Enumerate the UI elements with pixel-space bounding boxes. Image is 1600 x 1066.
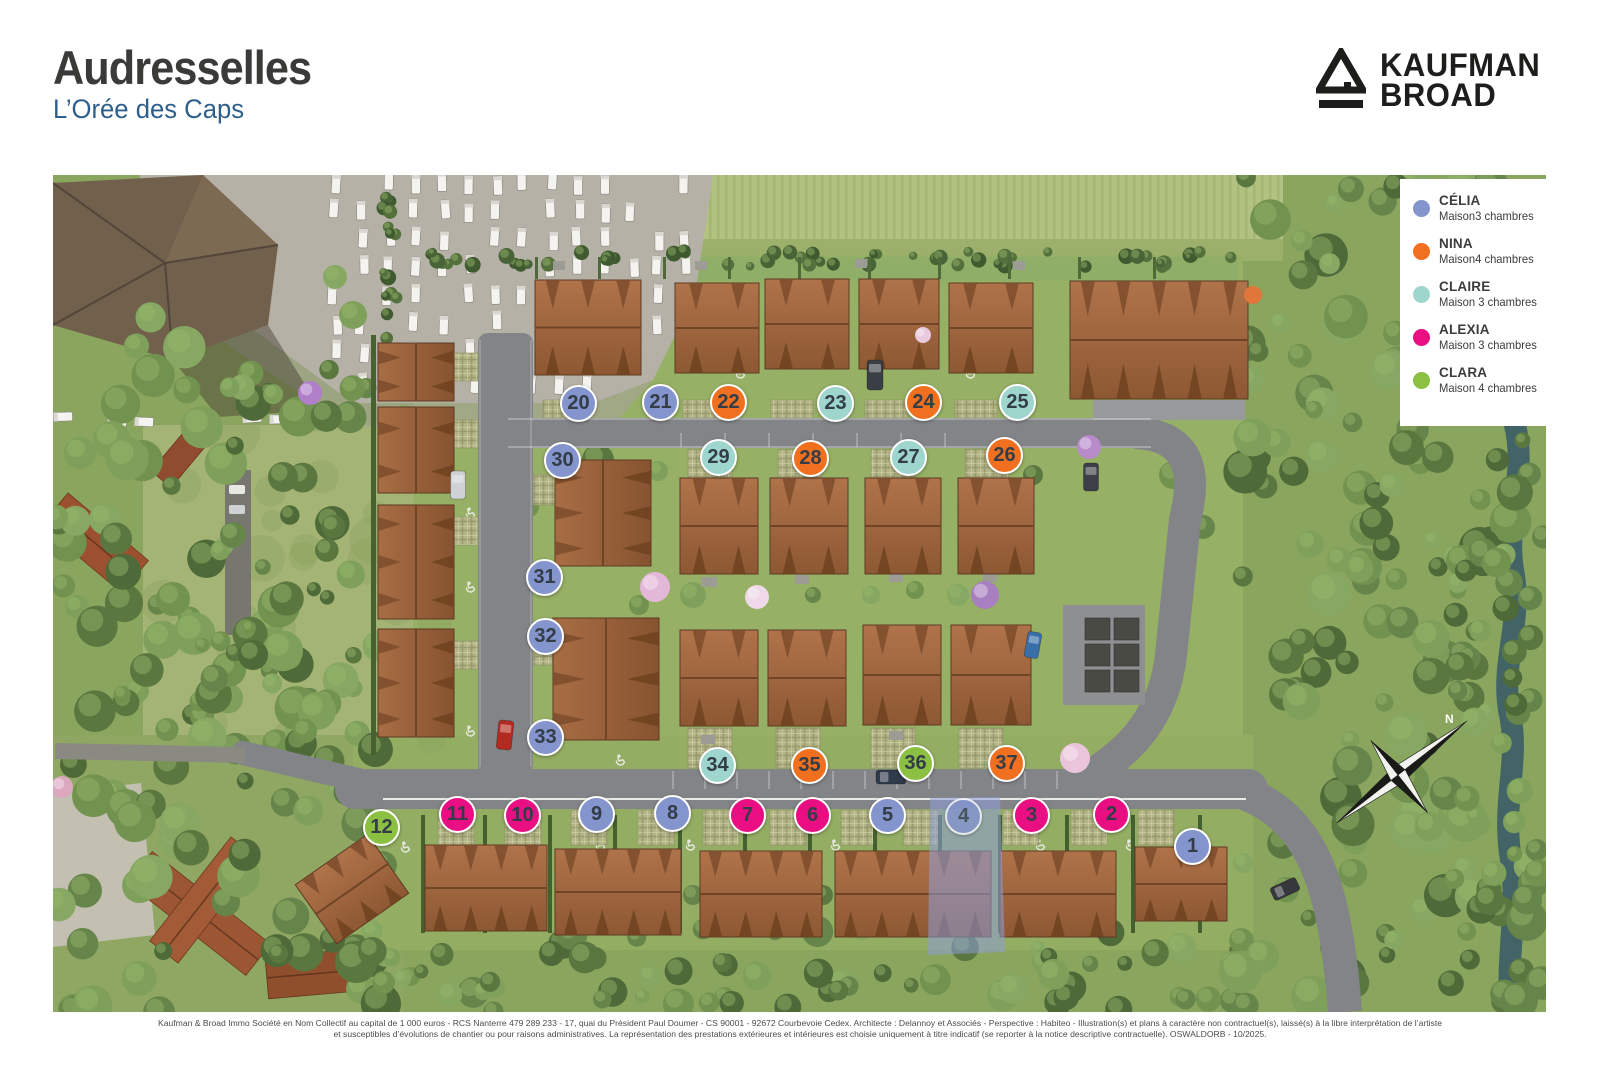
kaufman-broad-triangle-icon [1316, 48, 1366, 112]
lot-marker-32[interactable]: 32 [527, 618, 564, 655]
legend-item-alexia: ALEXIAMaison 3 chambres [1413, 322, 1546, 352]
lot-marker-28[interactable]: 28 [792, 440, 829, 477]
lot-marker-3[interactable]: 3 [1013, 797, 1050, 834]
lot-marker-2[interactable]: 2 [1093, 796, 1130, 833]
lot-marker-9[interactable]: 9 [578, 796, 615, 833]
lot-marker-25[interactable]: 25 [999, 384, 1036, 421]
legend-color-dot-claire [1413, 286, 1430, 303]
lot-marker-26[interactable]: 26 [986, 437, 1023, 474]
legend-color-dot-clara [1413, 372, 1430, 389]
lot-marker-7[interactable]: 7 [729, 797, 766, 834]
fineprint-line1: Kaufman & Broad Immo Société en Nom Coll… [0, 1018, 1600, 1029]
lot-marker-1[interactable]: 1 [1174, 828, 1211, 865]
legal-fineprint: Kaufman & Broad Immo Société en Nom Coll… [0, 1018, 1600, 1040]
lot-marker-11[interactable]: 11 [439, 796, 476, 833]
lot-marker-24[interactable]: 24 [905, 384, 942, 421]
kaufman-broad-wordmark: KAUFMAN BROAD [1380, 50, 1540, 110]
lot-marker-36[interactable]: 36 [897, 745, 934, 782]
lot-marker-6[interactable]: 6 [794, 797, 831, 834]
legend-item-celia: CÉLIAMaison3 chambres [1413, 193, 1546, 223]
lot-marker-35[interactable]: 35 [791, 747, 828, 784]
lot-marker-34[interactable]: 34 [699, 747, 736, 784]
lot-marker-23[interactable]: 23 [817, 385, 854, 422]
lot-marker-29[interactable]: 29 [700, 439, 737, 476]
legend-color-dot-nina [1413, 243, 1430, 260]
lot-markers: 1234567891011122021222324252627282930313… [53, 175, 1546, 1012]
lot-marker-20[interactable]: 20 [560, 385, 597, 422]
page-subtitle: L’Orée des Caps [53, 94, 244, 125]
lot-marker-10[interactable]: 10 [504, 797, 541, 834]
lot-marker-27[interactable]: 27 [890, 439, 927, 476]
kaufman-broad-logo: KAUFMAN BROAD [1316, 48, 1545, 112]
lot-marker-8[interactable]: 8 [654, 795, 691, 832]
lot-marker-5[interactable]: 5 [869, 797, 906, 834]
lot-marker-21[interactable]: 21 [642, 384, 679, 421]
fineprint-line2: et susceptibles d’évolutions de chantier… [0, 1029, 1600, 1040]
page-title: Audresselles [53, 40, 311, 95]
lot-marker-4[interactable]: 4 [945, 798, 982, 835]
lot-marker-33[interactable]: 33 [527, 719, 564, 756]
lot-marker-12[interactable]: 12 [363, 809, 400, 846]
legend-item-claire: CLAIREMaison 3 chambres [1413, 279, 1546, 309]
site-plan-map: N 12345678910111220212223242526272829303… [53, 175, 1546, 1012]
legend-color-dot-alexia [1413, 329, 1430, 346]
lot-marker-31[interactable]: 31 [526, 559, 563, 596]
lot-marker-30[interactable]: 30 [544, 442, 581, 479]
page: Audresselles L’Orée des Caps KAUFMAN BRO… [0, 0, 1600, 1066]
lot-marker-22[interactable]: 22 [710, 384, 747, 421]
legend-panel: CÉLIAMaison3 chambres NINAMaison4 chambr… [1400, 179, 1546, 426]
lot-marker-37[interactable]: 37 [988, 745, 1025, 782]
legend-item-nina: NINAMaison4 chambres [1413, 236, 1546, 266]
legend-color-dot-celia [1413, 200, 1430, 217]
legend-item-clara: CLARAMaison 4 chambres [1413, 365, 1546, 395]
